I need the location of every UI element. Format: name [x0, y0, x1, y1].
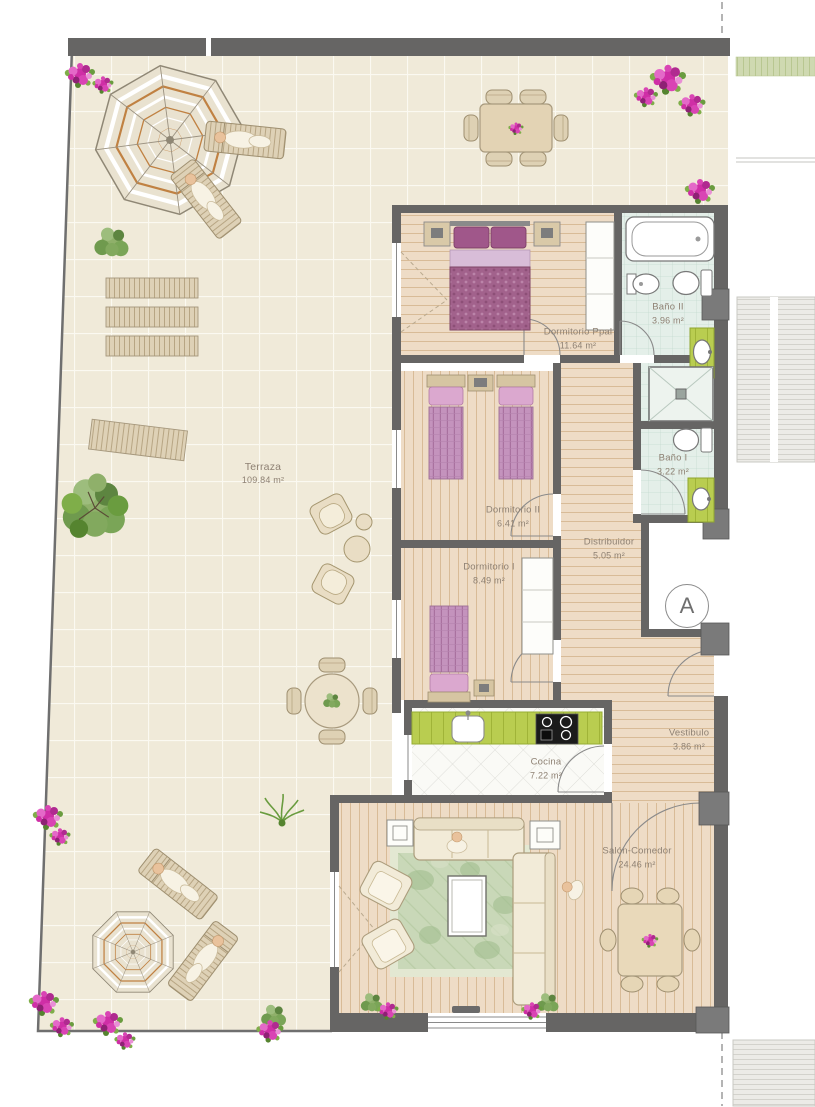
room-label-distribuidor: Distribuidor 5.05 m² [584, 537, 634, 562]
sofa-top-icon [414, 818, 524, 860]
twin-bed-1-icon [427, 375, 465, 479]
toilet2-icon [673, 270, 712, 296]
cooktop-icon [536, 714, 578, 744]
room-label-dormitorio-2: Dormitorio II 6.41 m² [486, 505, 540, 530]
bedroom1-nightstand [474, 680, 494, 696]
room-area: 6.41 m² [486, 517, 540, 529]
room-area: 3.22 m² [657, 465, 689, 477]
room-area: 7.22 m² [530, 769, 562, 781]
room-area: 8.49 m² [463, 574, 515, 586]
bathtub-icon [626, 217, 714, 261]
perimeter-wall-top [68, 38, 730, 56]
sofa-right-icon [513, 853, 555, 1005]
room-area: 11.64 m² [544, 339, 612, 351]
side-table-right-icon [530, 821, 560, 849]
planter-band [736, 57, 815, 76]
room-name: Salón-Comedor [602, 846, 671, 859]
room-name: Dormitorio I [463, 562, 515, 575]
room-name: Terraza [242, 460, 284, 474]
shower-icon [649, 367, 713, 421]
vestibule-floor [612, 629, 714, 803]
room-area: 109.84 m² [242, 474, 284, 486]
room-area: 5.05 m² [584, 549, 634, 561]
room-label-bano-2: Baño II 3.96 m² [652, 302, 684, 327]
twin-bed-2-icon [497, 375, 535, 479]
room-name: Dormitorio II [486, 505, 540, 518]
bidet-icon [627, 274, 659, 294]
room-area: 3.96 m² [652, 314, 684, 326]
tv-icon [452, 1006, 480, 1013]
floor-plan-graphic [0, 0, 815, 1107]
floor-plan: Terraza 109.84 m² Dormitorio Ppal 11.64 … [0, 0, 815, 1107]
section-marker-a: A [665, 584, 709, 628]
section-marker-label: A [680, 593, 695, 619]
bedroom2-nightstand [468, 375, 493, 391]
coffee-table-icon [448, 876, 486, 936]
room-label-salon-comedor: Salón-Comedor 24.46 m² [602, 846, 671, 871]
room-area: 3.86 m² [669, 740, 709, 752]
room-label-bano-1: Baño I 3.22 m² [657, 453, 689, 478]
exterior-right [722, 2, 815, 1106]
kitchen-counter-icon [412, 711, 602, 745]
toilet1-icon [674, 428, 713, 452]
room-label-cocina: Cocina 7.22 m² [530, 757, 562, 782]
master-wardrobe-icon [586, 222, 614, 330]
room-label-dormitorio-1: Dormitorio I 8.49 m² [463, 562, 515, 587]
room-area: 24.46 m² [602, 858, 671, 870]
single-bed-icon [428, 606, 470, 702]
room-label-dormitorio-ppal: Dormitorio Ppal 11.64 m² [544, 327, 612, 352]
room-name: Baño II [652, 302, 684, 315]
room-name: Baño I [657, 453, 689, 466]
room-name: Cocina [530, 757, 562, 770]
parasol-small-icon [93, 912, 173, 992]
room-label-vestibulo: Vestibulo 3.86 m² [669, 728, 709, 753]
room-label-terraza: Terraza 109.84 m² [242, 460, 284, 486]
neighbor-block-bottom [733, 1040, 815, 1106]
side-table-left-icon [387, 820, 413, 846]
room-name: Dormitorio Ppal [544, 327, 612, 340]
room-name: Distribuidor [584, 537, 634, 550]
washbasin1-icon [688, 478, 714, 522]
room-name: Vestibulo [669, 728, 709, 741]
bedroom1-wardrobe-icon [522, 558, 553, 654]
